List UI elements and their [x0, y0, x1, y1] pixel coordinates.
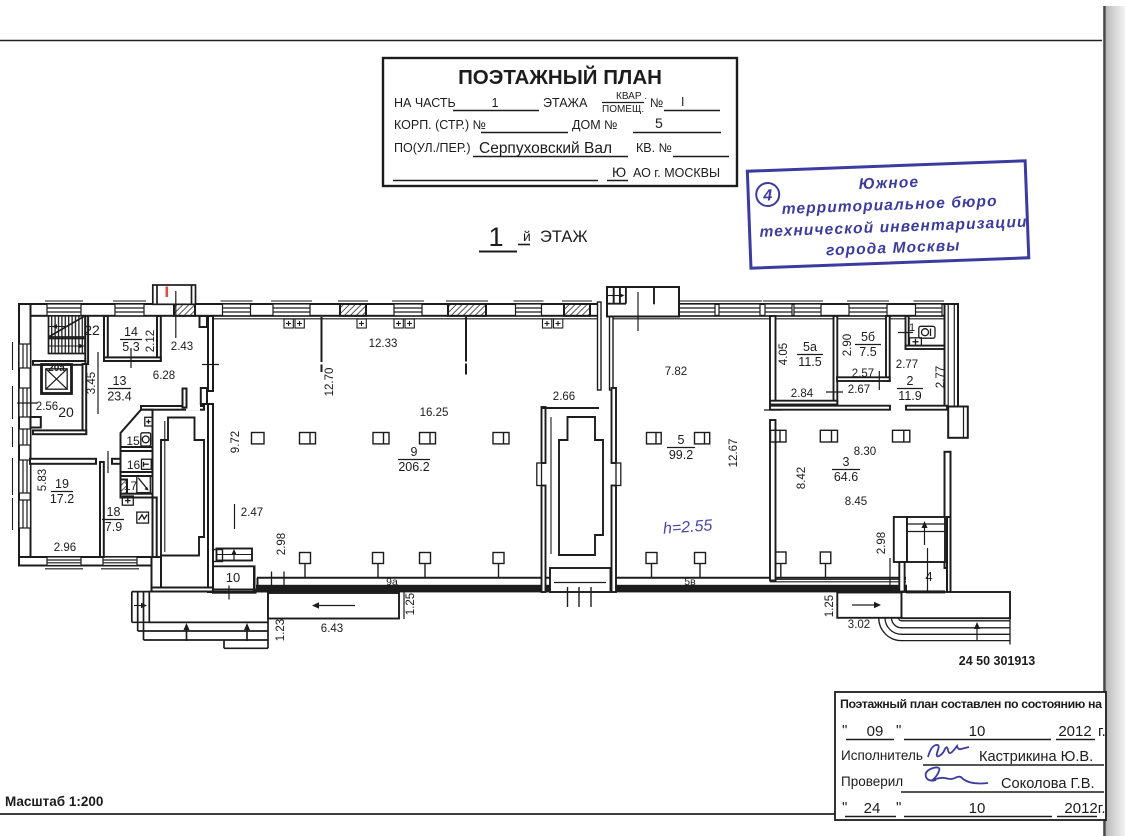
svg-text:4.05: 4.05 [778, 343, 790, 365]
svg-text:19: 19 [55, 477, 69, 491]
svg-text:10: 10 [226, 570, 240, 585]
svg-text:12.70: 12.70 [324, 368, 336, 397]
svg-text:8.42: 8.42 [796, 467, 808, 489]
svg-text:09: 09 [867, 723, 884, 740]
svg-text:7.5: 7.5 [859, 345, 876, 359]
svg-text:h=2.55: h=2.55 [662, 517, 713, 537]
svg-text:й: й [523, 228, 531, 244]
svg-text:9: 9 [411, 445, 418, 459]
svg-text:5: 5 [678, 433, 685, 447]
svg-text:2.77: 2.77 [935, 366, 947, 388]
svg-text:2: 2 [907, 374, 914, 388]
svg-text:4: 4 [762, 187, 773, 204]
svg-text:Исполнитель: Исполнитель [841, 748, 923, 763]
svg-text:2012г.: 2012г. [1064, 800, 1105, 817]
svg-text:2.98: 2.98 [276, 533, 288, 555]
svg-text:Серпуховский Вал: Серпуховский Вал [479, 140, 612, 157]
svg-text:5.3: 5.3 [122, 340, 139, 354]
svg-text:206.2: 206.2 [398, 460, 429, 474]
svg-text:11.9: 11.9 [898, 389, 921, 403]
svg-text:Кастрикина Ю.В.: Кастрикина Ю.В. [979, 749, 1093, 765]
svg-text:2.67: 2.67 [848, 384, 870, 396]
svg-text:ДОМ №: ДОМ № [572, 118, 617, 132]
svg-text:№: № [650, 96, 663, 110]
svg-text:г.: г. [1098, 723, 1106, 740]
svg-text:КВАР .: КВАР . [616, 91, 647, 102]
svg-text:1: 1 [909, 322, 915, 334]
svg-text:3.02: 3.02 [848, 619, 870, 631]
svg-text:Поэтажный план составлен по со: Поэтажный план составлен по состоянию на [840, 697, 1102, 711]
svg-text:ЭТАЖА: ЭТАЖА [543, 96, 588, 110]
svg-text:Масштаб 1:200: Масштаб 1:200 [5, 794, 103, 809]
svg-text:12.67: 12.67 [728, 439, 740, 468]
svg-text:16: 16 [127, 458, 141, 472]
svg-text:5в: 5в [684, 576, 696, 588]
svg-text:2.66: 2.66 [553, 391, 575, 403]
svg-text:АО г. МОСКВЫ: АО г. МОСКВЫ [633, 166, 720, 180]
svg-text:Проверил: Проверил [841, 774, 903, 789]
svg-text:": " [896, 722, 901, 739]
svg-text:10: 10 [969, 723, 986, 740]
svg-text:4: 4 [925, 569, 932, 584]
svg-text:1: 1 [488, 222, 503, 252]
svg-text:5: 5 [655, 115, 663, 131]
svg-text:15: 15 [126, 434, 140, 448]
svg-text:ЭТАЖ: ЭТАЖ [540, 228, 588, 246]
svg-text:24: 24 [864, 800, 881, 817]
svg-text:8.45: 8.45 [845, 496, 867, 508]
svg-text:5.83: 5.83 [37, 469, 49, 491]
svg-text:НА ЧАСТЬ: НА ЧАСТЬ [394, 96, 456, 110]
svg-text:11.5: 11.5 [798, 355, 821, 369]
svg-text:2.47: 2.47 [241, 507, 263, 519]
svg-text:14: 14 [124, 325, 138, 339]
svg-text:Южное: Южное [858, 174, 919, 193]
svg-text:2.77: 2.77 [896, 359, 918, 371]
svg-text:": " [896, 799, 901, 816]
svg-text:64.6: 64.6 [834, 470, 858, 484]
svg-text:10: 10 [969, 800, 986, 817]
svg-text:9а: 9а [386, 576, 398, 588]
svg-text:2.43: 2.43 [171, 341, 193, 353]
svg-text:ПО(УЛ./ПЕР.): ПО(УЛ./ПЕР.) [394, 141, 470, 155]
svg-text:9.72: 9.72 [230, 431, 242, 453]
svg-text:3: 3 [843, 455, 850, 469]
svg-text:": " [842, 722, 847, 739]
svg-text:2.96: 2.96 [54, 542, 76, 554]
svg-text:7.9: 7.9 [105, 520, 122, 534]
svg-text:12.33: 12.33 [369, 338, 398, 350]
svg-text:17.2: 17.2 [50, 492, 74, 506]
svg-text:6.43: 6.43 [321, 623, 343, 635]
svg-text:КВ. №: КВ. № [636, 141, 672, 155]
svg-text:18: 18 [107, 505, 121, 519]
svg-text:13: 13 [113, 374, 127, 388]
svg-text:Соколова Г.В.: Соколова Г.В. [1001, 776, 1095, 792]
svg-text:3.45: 3.45 [86, 372, 98, 394]
svg-text:2.56: 2.56 [36, 401, 58, 413]
svg-text:23.4: 23.4 [107, 390, 131, 404]
svg-text:2.90: 2.90 [842, 334, 854, 356]
svg-text:24 50 301913: 24 50 301913 [959, 654, 1036, 668]
svg-text:КОРП. (СТР.) №: КОРП. (СТР.) № [394, 118, 486, 132]
svg-text:17: 17 [124, 479, 138, 493]
svg-text:1.23: 1.23 [275, 619, 287, 641]
svg-text:99.2: 99.2 [669, 448, 693, 462]
svg-text:2.12: 2.12 [145, 330, 157, 352]
svg-text:2012: 2012 [1058, 723, 1091, 740]
svg-text:7.82: 7.82 [665, 366, 687, 378]
svg-text:": " [842, 799, 847, 816]
svg-text:6.28: 6.28 [153, 370, 175, 382]
svg-text:5а: 5а [803, 340, 817, 354]
svg-text:Ю: Ю [612, 164, 626, 180]
svg-text:1.25: 1.25 [824, 595, 836, 617]
svg-text:1: 1 [492, 96, 499, 110]
svg-text:16.25: 16.25 [420, 407, 449, 419]
svg-text:20: 20 [58, 404, 74, 420]
svg-text:20а: 20а [48, 363, 65, 374]
svg-text:8.30: 8.30 [854, 446, 876, 458]
svg-text:2.98: 2.98 [876, 532, 888, 554]
svg-text:2.57: 2.57 [852, 368, 874, 380]
svg-text:ПОМЕЩ.: ПОМЕЩ. [602, 104, 644, 115]
svg-text:I: I [681, 95, 684, 109]
svg-text:2.84: 2.84 [791, 388, 814, 400]
svg-text:1.25: 1.25 [405, 593, 417, 615]
svg-text:5б: 5б [861, 330, 875, 344]
svg-text:ПОЭТАЖНЫЙ ПЛАН: ПОЭТАЖНЫЙ ПЛАН [458, 65, 662, 89]
svg-text:22: 22 [84, 322, 100, 338]
